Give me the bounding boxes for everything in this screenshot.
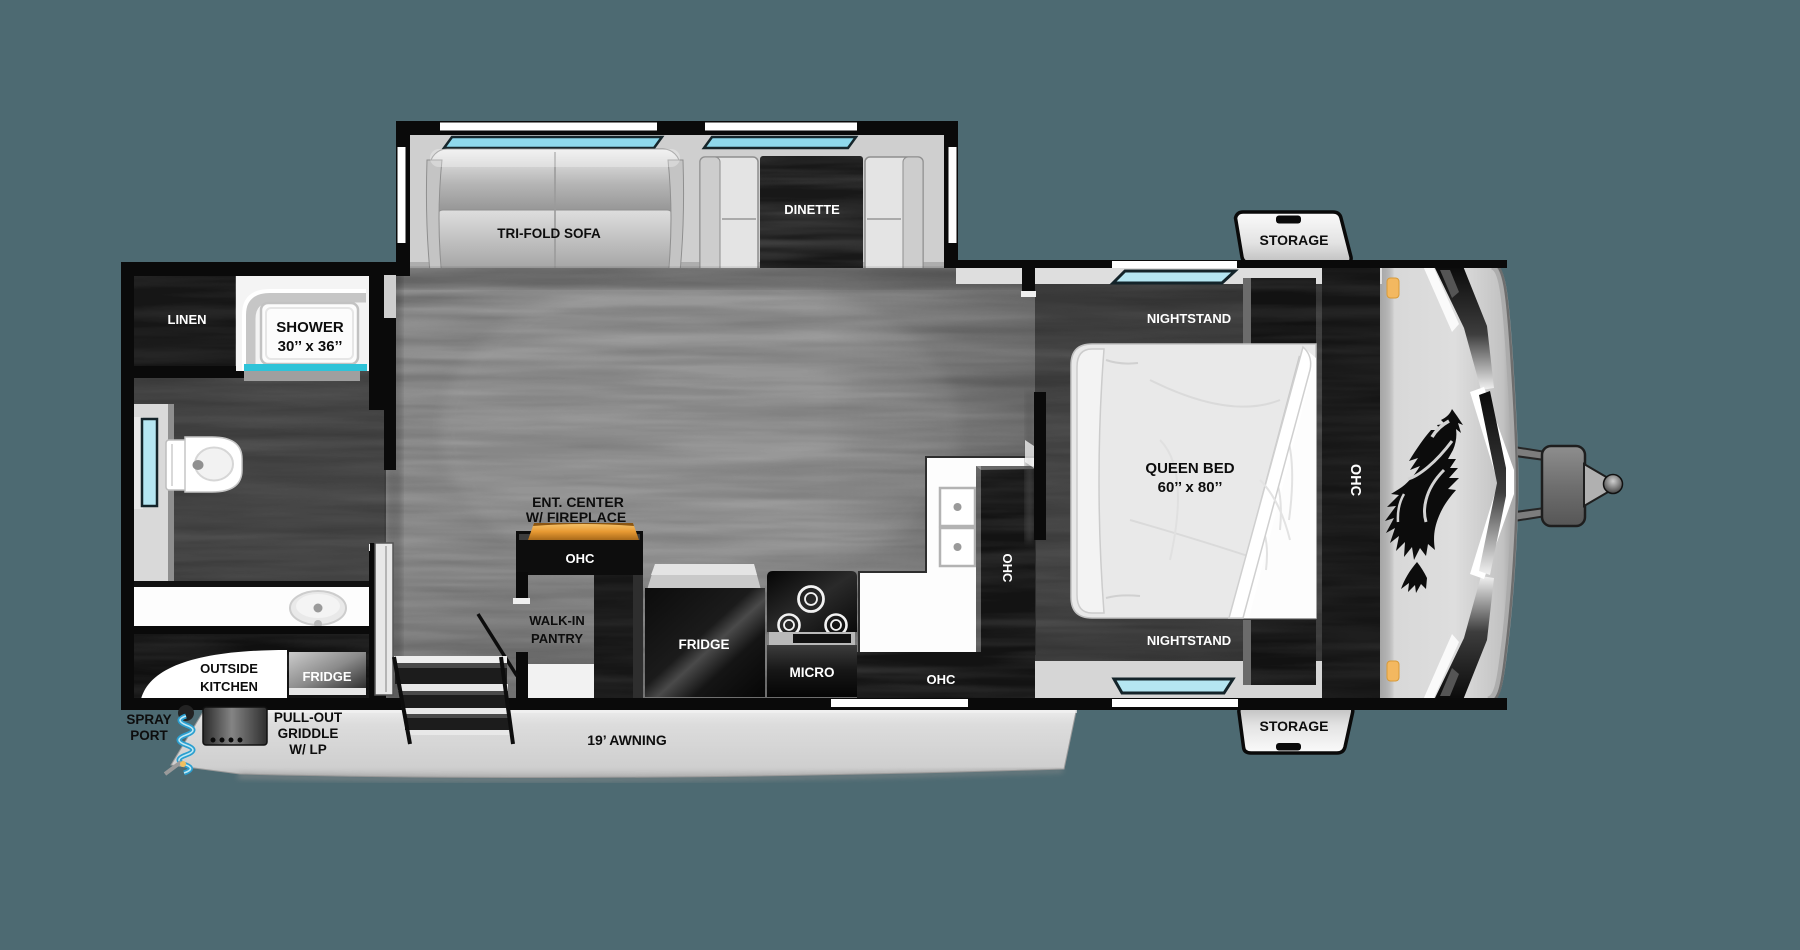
svg-text:SPRAY: SPRAY <box>126 712 171 727</box>
svg-text:WALK-IN: WALK-IN <box>529 613 585 628</box>
svg-text:SHOWER: SHOWER <box>276 319 344 336</box>
svg-text:PORT: PORT <box>130 728 168 743</box>
svg-text:OHC: OHC <box>566 551 596 566</box>
svg-text:ENT. CENTER: ENT. CENTER <box>532 494 624 510</box>
svg-text:OHC: OHC <box>1000 554 1015 584</box>
svg-text:LINEN: LINEN <box>168 312 207 327</box>
svg-text:19’ AWNING: 19’ AWNING <box>587 732 667 748</box>
svg-text:W/ FIREPLACE: W/ FIREPLACE <box>526 509 626 525</box>
svg-text:GRIDDLE: GRIDDLE <box>278 726 339 741</box>
svg-text:OUTSIDE: OUTSIDE <box>200 661 258 676</box>
svg-text:TRI-FOLD SOFA: TRI-FOLD SOFA <box>497 226 601 241</box>
svg-text:NIGHTSTAND: NIGHTSTAND <box>1147 633 1231 648</box>
svg-text:STORAGE: STORAGE <box>1260 232 1329 248</box>
svg-text:60’’ x 80’’: 60’’ x 80’’ <box>1158 479 1223 496</box>
svg-text:OHC: OHC <box>927 672 957 687</box>
svg-text:OHC: OHC <box>1347 464 1363 497</box>
svg-text:STORAGE: STORAGE <box>1260 718 1329 734</box>
svg-text:NIGHTSTAND: NIGHTSTAND <box>1147 311 1231 326</box>
svg-text:PULL-OUT: PULL-OUT <box>274 710 343 725</box>
svg-text:DINETTE: DINETTE <box>784 202 840 217</box>
svg-text:FRIDGE: FRIDGE <box>678 637 729 652</box>
svg-text:QUEEN BED: QUEEN BED <box>1145 460 1234 477</box>
svg-text:PANTRY: PANTRY <box>531 631 583 646</box>
svg-text:W/ LP: W/ LP <box>289 742 327 757</box>
svg-text:MICRO: MICRO <box>790 665 835 680</box>
svg-text:30’’ x 36’’: 30’’ x 36’’ <box>278 338 343 355</box>
svg-text:KITCHEN: KITCHEN <box>200 679 258 694</box>
svg-text:FRIDGE: FRIDGE <box>302 669 351 684</box>
